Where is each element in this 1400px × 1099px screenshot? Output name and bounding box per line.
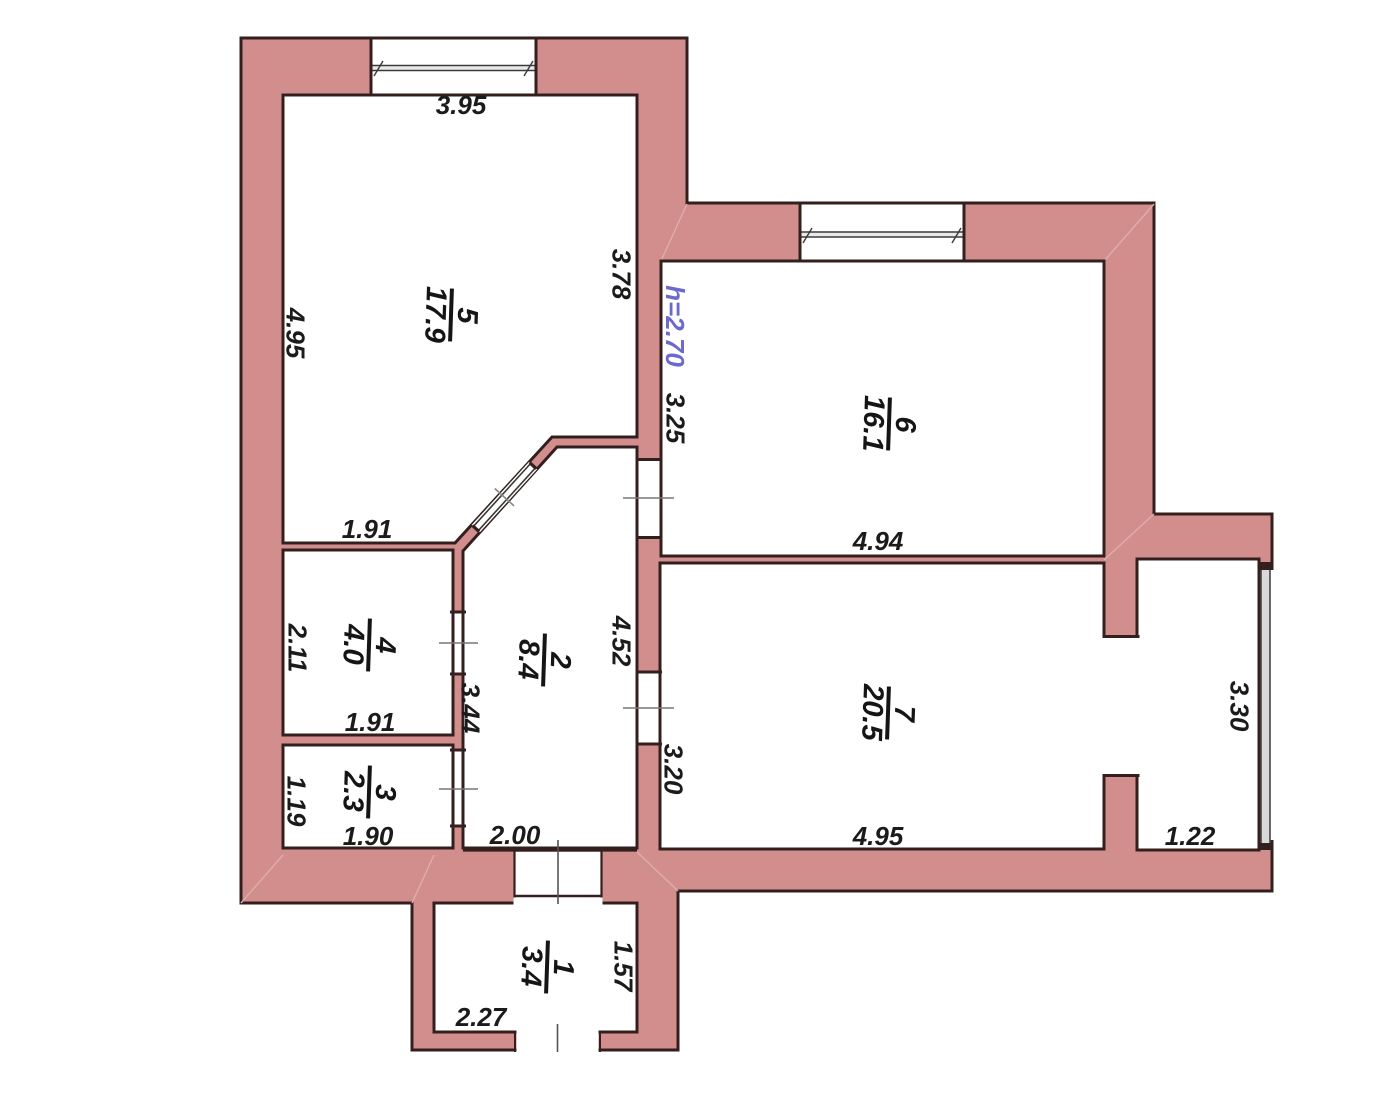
svg-text:5: 5 <box>451 307 484 325</box>
svg-text:3.78: 3.78 <box>607 249 637 300</box>
svg-text:17.9: 17.9 <box>418 286 452 344</box>
svg-text:1.91: 1.91 <box>345 707 396 737</box>
svg-text:4.52: 4.52 <box>607 615 637 667</box>
svg-text:1.91: 1.91 <box>342 514 393 544</box>
svg-text:1.22: 1.22 <box>1165 821 1216 851</box>
svg-text:1.19: 1.19 <box>282 776 312 827</box>
svg-text:16.1: 16.1 <box>856 395 890 453</box>
svg-text:3.4: 3.4 <box>514 946 547 987</box>
svg-text:3.95: 3.95 <box>436 90 487 120</box>
svg-text:2.00: 2.00 <box>489 820 541 850</box>
svg-text:4.94: 4.94 <box>852 526 904 556</box>
svg-text:h=2.70: h=2.70 <box>660 285 690 367</box>
svg-text:8.4: 8.4 <box>511 639 544 680</box>
svg-text:4.0: 4.0 <box>336 623 369 665</box>
svg-text:7: 7 <box>888 705 921 724</box>
svg-text:1: 1 <box>547 959 580 976</box>
svg-text:2.3: 2.3 <box>336 770 369 812</box>
svg-text:3.44: 3.44 <box>456 683 486 734</box>
svg-text:6: 6 <box>889 416 922 434</box>
svg-text:2.27: 2.27 <box>455 1002 508 1032</box>
svg-text:3: 3 <box>369 784 402 801</box>
svg-text:3.30: 3.30 <box>1225 681 1255 732</box>
svg-text:1.57: 1.57 <box>609 941 639 993</box>
svg-text:20.5: 20.5 <box>855 683 889 742</box>
svg-text:4.95: 4.95 <box>281 307 311 359</box>
svg-text:1.90: 1.90 <box>343 821 394 851</box>
svg-text:3.25: 3.25 <box>661 393 691 444</box>
svg-text:3.20: 3.20 <box>659 744 689 795</box>
svg-text:2.11: 2.11 <box>283 623 313 673</box>
svg-text:2: 2 <box>544 651 577 669</box>
svg-text:4.95: 4.95 <box>852 821 904 851</box>
svg-text:4: 4 <box>369 636 402 654</box>
